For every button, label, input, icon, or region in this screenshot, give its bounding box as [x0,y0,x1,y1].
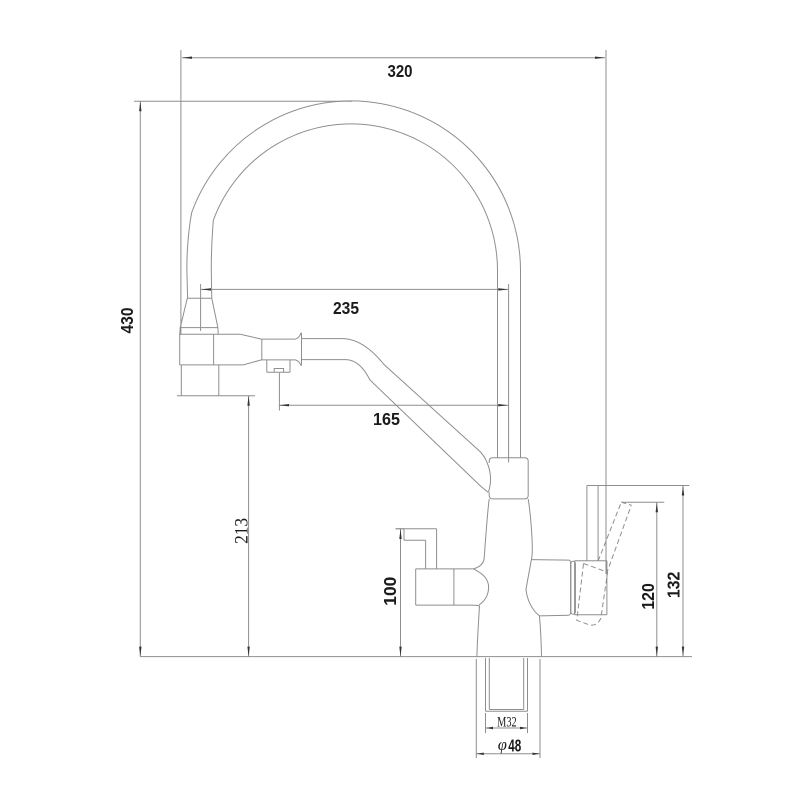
svg-text:235: 235 [333,298,359,318]
svg-text:132: 132 [664,571,684,598]
svg-text:430: 430 [117,307,137,333]
svg-text:120: 120 [638,583,658,610]
svg-text:48: 48 [508,736,521,756]
svg-text:213: 213 [231,518,252,544]
svg-text:100: 100 [380,576,400,605]
svg-text:165: 165 [373,409,400,429]
svg-text:φ: φ [498,735,507,754]
svg-text:M32: M32 [497,714,517,730]
svg-text:320: 320 [388,61,413,81]
